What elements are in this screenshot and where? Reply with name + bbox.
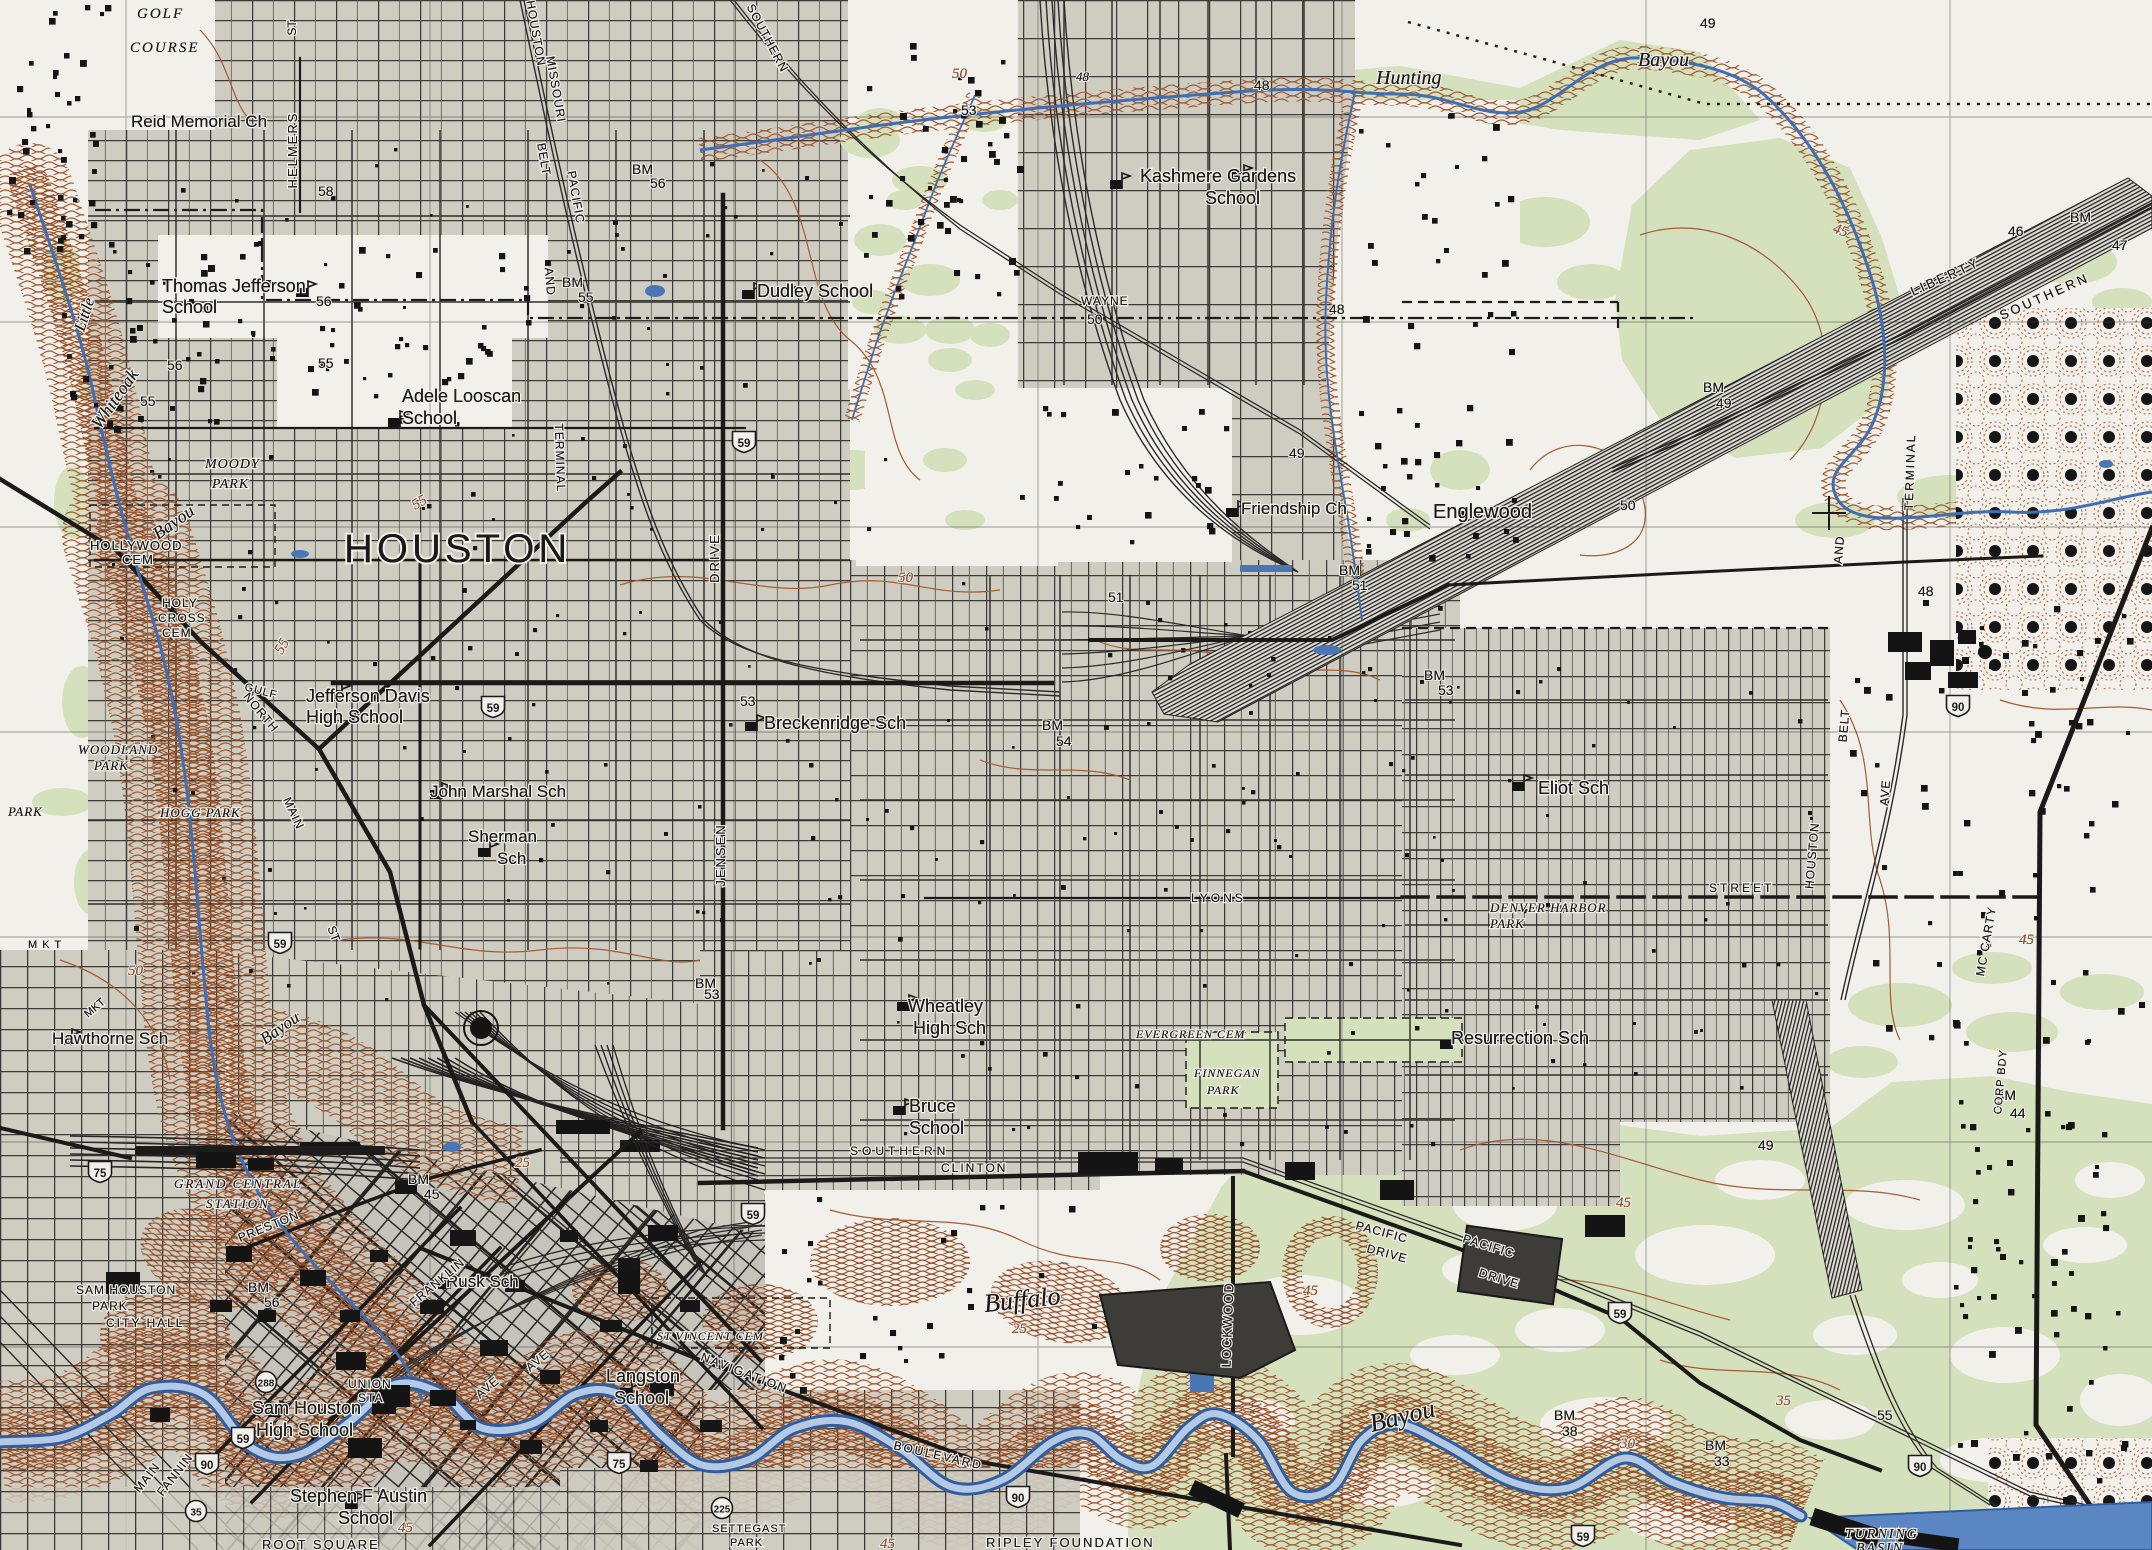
svg-text:Friendship Ch: Friendship Ch bbox=[1241, 499, 1347, 518]
svg-text:CLINTON: CLINTON bbox=[941, 1161, 1007, 1175]
svg-text:BM: BM bbox=[2070, 209, 2091, 225]
svg-text:90: 90 bbox=[1952, 702, 1965, 714]
svg-text:50: 50 bbox=[898, 570, 914, 586]
svg-text:BM: BM bbox=[1339, 562, 1360, 578]
svg-text:BM: BM bbox=[1554, 1407, 1575, 1423]
svg-text:90: 90 bbox=[201, 1460, 214, 1472]
svg-text:45: 45 bbox=[424, 1186, 440, 1202]
svg-text:54: 54 bbox=[1056, 733, 1072, 749]
svg-text:Kashmere Gardens: Kashmere Gardens bbox=[1140, 166, 1296, 186]
svg-text:PARK: PARK bbox=[7, 804, 43, 819]
svg-text:288: 288 bbox=[258, 1379, 275, 1390]
svg-text:SETTEGAST: SETTEGAST bbox=[712, 1523, 786, 1535]
svg-text:TURNING: TURNING bbox=[1845, 1527, 1919, 1542]
svg-text:ST: ST bbox=[285, 20, 299, 36]
svg-text:BELT: BELT bbox=[1836, 709, 1853, 743]
svg-text:Resurrection Sch: Resurrection Sch bbox=[1451, 1028, 1589, 1048]
svg-text:AND: AND bbox=[1831, 535, 1847, 564]
svg-text:75: 75 bbox=[94, 1168, 107, 1180]
svg-text:51: 51 bbox=[1108, 589, 1124, 605]
svg-text:Bayou: Bayou bbox=[1638, 49, 1689, 71]
svg-text:Englewood: Englewood bbox=[1433, 501, 1532, 523]
svg-text:GOLF: GOLF bbox=[137, 6, 184, 22]
svg-text:75: 75 bbox=[613, 1459, 626, 1471]
svg-text:Reid Memorial Ch: Reid Memorial Ch bbox=[131, 112, 267, 131]
svg-text:Sch: Sch bbox=[497, 849, 526, 868]
svg-text:49: 49 bbox=[1700, 15, 1716, 31]
svg-text:BM: BM bbox=[408, 1171, 429, 1187]
svg-text:BM: BM bbox=[1703, 379, 1724, 395]
svg-text:Wheatley: Wheatley bbox=[908, 996, 983, 1016]
svg-text:47: 47 bbox=[2112, 237, 2128, 253]
svg-text:50: 50 bbox=[952, 66, 968, 82]
svg-text:53: 53 bbox=[1438, 682, 1454, 698]
svg-text:35: 35 bbox=[1775, 1393, 1792, 1409]
svg-text:School: School bbox=[1205, 188, 1260, 208]
svg-text:COURSE: COURSE bbox=[130, 40, 200, 56]
svg-text:AVE: AVE bbox=[1877, 779, 1893, 806]
svg-text:45: 45 bbox=[1616, 1195, 1632, 1211]
svg-text:School: School bbox=[909, 1118, 964, 1138]
svg-text:Stephen F Austin: Stephen F Austin bbox=[290, 1486, 427, 1506]
svg-text:Sherman: Sherman bbox=[468, 827, 537, 846]
svg-text:STA: STA bbox=[358, 1391, 383, 1405]
svg-text:59: 59 bbox=[1577, 1532, 1590, 1544]
svg-text:WAYNE: WAYNE bbox=[1081, 294, 1129, 308]
svg-text:WOODLAND: WOODLAND bbox=[78, 742, 158, 757]
svg-text:33: 33 bbox=[1714, 1453, 1730, 1469]
svg-text:School: School bbox=[338, 1508, 393, 1528]
svg-text:50: 50 bbox=[1620, 497, 1636, 513]
svg-text:GRAND CENTRAL: GRAND CENTRAL bbox=[174, 1176, 302, 1191]
svg-text:School: School bbox=[614, 1388, 669, 1408]
svg-text:EVERGREEN CEM: EVERGREEN CEM bbox=[1135, 1027, 1245, 1041]
svg-text:HELMERS: HELMERS bbox=[285, 112, 300, 189]
svg-text:HOUSTON: HOUSTON bbox=[344, 527, 571, 571]
svg-text:School: School bbox=[402, 408, 457, 428]
svg-text:PARK: PARK bbox=[1489, 916, 1525, 931]
svg-text:49: 49 bbox=[1289, 445, 1305, 461]
svg-text:49: 49 bbox=[1758, 1137, 1774, 1153]
svg-text:CEM: CEM bbox=[122, 552, 154, 567]
svg-text:25: 25 bbox=[515, 1155, 531, 1171]
svg-text:HOLLYWOOD: HOLLYWOOD bbox=[90, 538, 183, 553]
svg-text:58: 58 bbox=[318, 183, 334, 199]
svg-text:55: 55 bbox=[318, 355, 334, 371]
svg-text:Langston: Langston bbox=[606, 1366, 680, 1386]
svg-text:STREET: STREET bbox=[1709, 881, 1774, 895]
svg-text:Hawthorne Sch: Hawthorne Sch bbox=[52, 1029, 168, 1048]
svg-text:Jefferson Davis: Jefferson Davis bbox=[306, 686, 430, 706]
svg-text:Dudley School: Dudley School bbox=[757, 281, 873, 301]
svg-text:High Sch: High Sch bbox=[913, 1018, 986, 1038]
svg-text:50: 50 bbox=[128, 963, 144, 979]
svg-text:RIPLEY FOUNDATION: RIPLEY FOUNDATION bbox=[986, 1535, 1155, 1550]
svg-text:BASIN: BASIN bbox=[1856, 1541, 1904, 1550]
svg-text:PARK: PARK bbox=[211, 477, 249, 492]
svg-text:48: 48 bbox=[1918, 583, 1934, 599]
svg-text:M K T: M K T bbox=[28, 939, 62, 951]
svg-text:25: 25 bbox=[1012, 1321, 1028, 1337]
svg-text:55: 55 bbox=[578, 289, 594, 305]
svg-text:55: 55 bbox=[1877, 1407, 1893, 1423]
svg-text:35: 35 bbox=[190, 1508, 202, 1519]
svg-text:90: 90 bbox=[1914, 1462, 1927, 1474]
svg-text:51: 51 bbox=[1352, 577, 1368, 593]
svg-text:59: 59 bbox=[274, 939, 287, 951]
svg-text:SOUTHERN: SOUTHERN bbox=[850, 1144, 949, 1158]
svg-text:30: 30 bbox=[1619, 1436, 1636, 1452]
svg-text:HOGG PARK: HOGG PARK bbox=[159, 805, 241, 820]
svg-text:PARK: PARK bbox=[730, 1537, 763, 1549]
svg-text:90: 90 bbox=[1012, 1493, 1025, 1505]
svg-text:CROSS: CROSS bbox=[158, 611, 206, 625]
svg-text:PARK: PARK bbox=[92, 1299, 128, 1313]
svg-text:PARK: PARK bbox=[1206, 1083, 1239, 1097]
svg-text:56: 56 bbox=[167, 357, 183, 373]
svg-text:HOLY: HOLY bbox=[162, 596, 198, 610]
svg-text:225: 225 bbox=[714, 1505, 731, 1516]
svg-text:56: 56 bbox=[316, 293, 332, 309]
svg-text:UNION: UNION bbox=[348, 1377, 392, 1391]
svg-text:48: 48 bbox=[1329, 301, 1345, 317]
svg-text:DENVER HARBOR: DENVER HARBOR bbox=[1489, 900, 1607, 915]
svg-text:56: 56 bbox=[264, 1294, 280, 1310]
svg-text:Breckenridge Sch: Breckenridge Sch bbox=[764, 713, 906, 733]
svg-text:John Marshal Sch: John Marshal Sch bbox=[430, 782, 566, 801]
svg-text:49: 49 bbox=[1716, 395, 1732, 411]
svg-text:59: 59 bbox=[747, 1210, 760, 1222]
svg-text:High School: High School bbox=[306, 707, 403, 727]
svg-text:45: 45 bbox=[2019, 932, 2035, 948]
svg-text:53: 53 bbox=[961, 102, 977, 118]
svg-text:ST VINCENT CEM: ST VINCENT CEM bbox=[657, 1329, 764, 1343]
svg-text:59: 59 bbox=[1614, 1309, 1627, 1321]
svg-text:Thomas Jefferson: Thomas Jefferson bbox=[162, 276, 306, 296]
svg-text:Eliot Sch: Eliot Sch bbox=[1538, 778, 1609, 798]
svg-text:48: 48 bbox=[1076, 69, 1090, 84]
svg-text:38: 38 bbox=[1562, 1423, 1578, 1439]
svg-text:CITY HALL: CITY HALL bbox=[106, 1316, 184, 1330]
svg-text:48: 48 bbox=[1254, 77, 1270, 93]
svg-text:JENSEN: JENSEN bbox=[713, 823, 728, 886]
svg-text:56: 56 bbox=[650, 175, 666, 191]
svg-text:AND: AND bbox=[542, 267, 558, 296]
svg-text:Adele Looscan: Adele Looscan bbox=[402, 386, 521, 406]
svg-text:BM: BM bbox=[248, 1279, 269, 1295]
svg-text:BM: BM bbox=[1042, 717, 1063, 733]
svg-text:MOODY: MOODY bbox=[204, 457, 261, 472]
svg-text:45: 45 bbox=[398, 1520, 414, 1536]
svg-text:LOCKWOOD: LOCKWOOD bbox=[1219, 1282, 1237, 1368]
svg-text:Sam Houston: Sam Houston bbox=[252, 1398, 361, 1418]
svg-text:55: 55 bbox=[140, 393, 156, 409]
svg-text:STATION: STATION bbox=[206, 1196, 270, 1211]
svg-text:45: 45 bbox=[1303, 1283, 1319, 1299]
svg-text:BM: BM bbox=[1705, 1437, 1726, 1453]
svg-text:53: 53 bbox=[740, 693, 756, 709]
svg-text:SAM HOUSTON: SAM HOUSTON bbox=[76, 1283, 176, 1297]
svg-text:DRIVE: DRIVE bbox=[707, 533, 722, 583]
svg-text:59: 59 bbox=[487, 703, 500, 715]
svg-text:LYONS: LYONS bbox=[1191, 891, 1246, 905]
svg-text:BM: BM bbox=[562, 274, 583, 290]
svg-text:FINNEGAN: FINNEGAN bbox=[1193, 1066, 1261, 1080]
svg-text:CEM: CEM bbox=[162, 626, 192, 640]
svg-text:TERMINAL: TERMINAL bbox=[552, 423, 568, 492]
svg-text:High School: High School bbox=[256, 1420, 353, 1440]
svg-text:PARK: PARK bbox=[93, 758, 129, 773]
svg-text:ROOT SQUARE: ROOT SQUARE bbox=[262, 1537, 380, 1550]
svg-text:BM: BM bbox=[695, 975, 716, 991]
svg-text:TERMINAL: TERMINAL bbox=[1902, 433, 1919, 510]
svg-text:44: 44 bbox=[2010, 1105, 2026, 1121]
svg-text:45: 45 bbox=[880, 1536, 896, 1550]
svg-text:46: 46 bbox=[2008, 223, 2024, 239]
svg-text:59: 59 bbox=[237, 1434, 250, 1446]
svg-text:Hunting: Hunting bbox=[1375, 67, 1442, 89]
svg-text:BM: BM bbox=[1424, 667, 1445, 683]
svg-text:School: School bbox=[162, 297, 217, 317]
svg-text:Bruce: Bruce bbox=[909, 1096, 956, 1116]
svg-text:50: 50 bbox=[1087, 311, 1103, 327]
svg-text:59: 59 bbox=[738, 438, 751, 450]
